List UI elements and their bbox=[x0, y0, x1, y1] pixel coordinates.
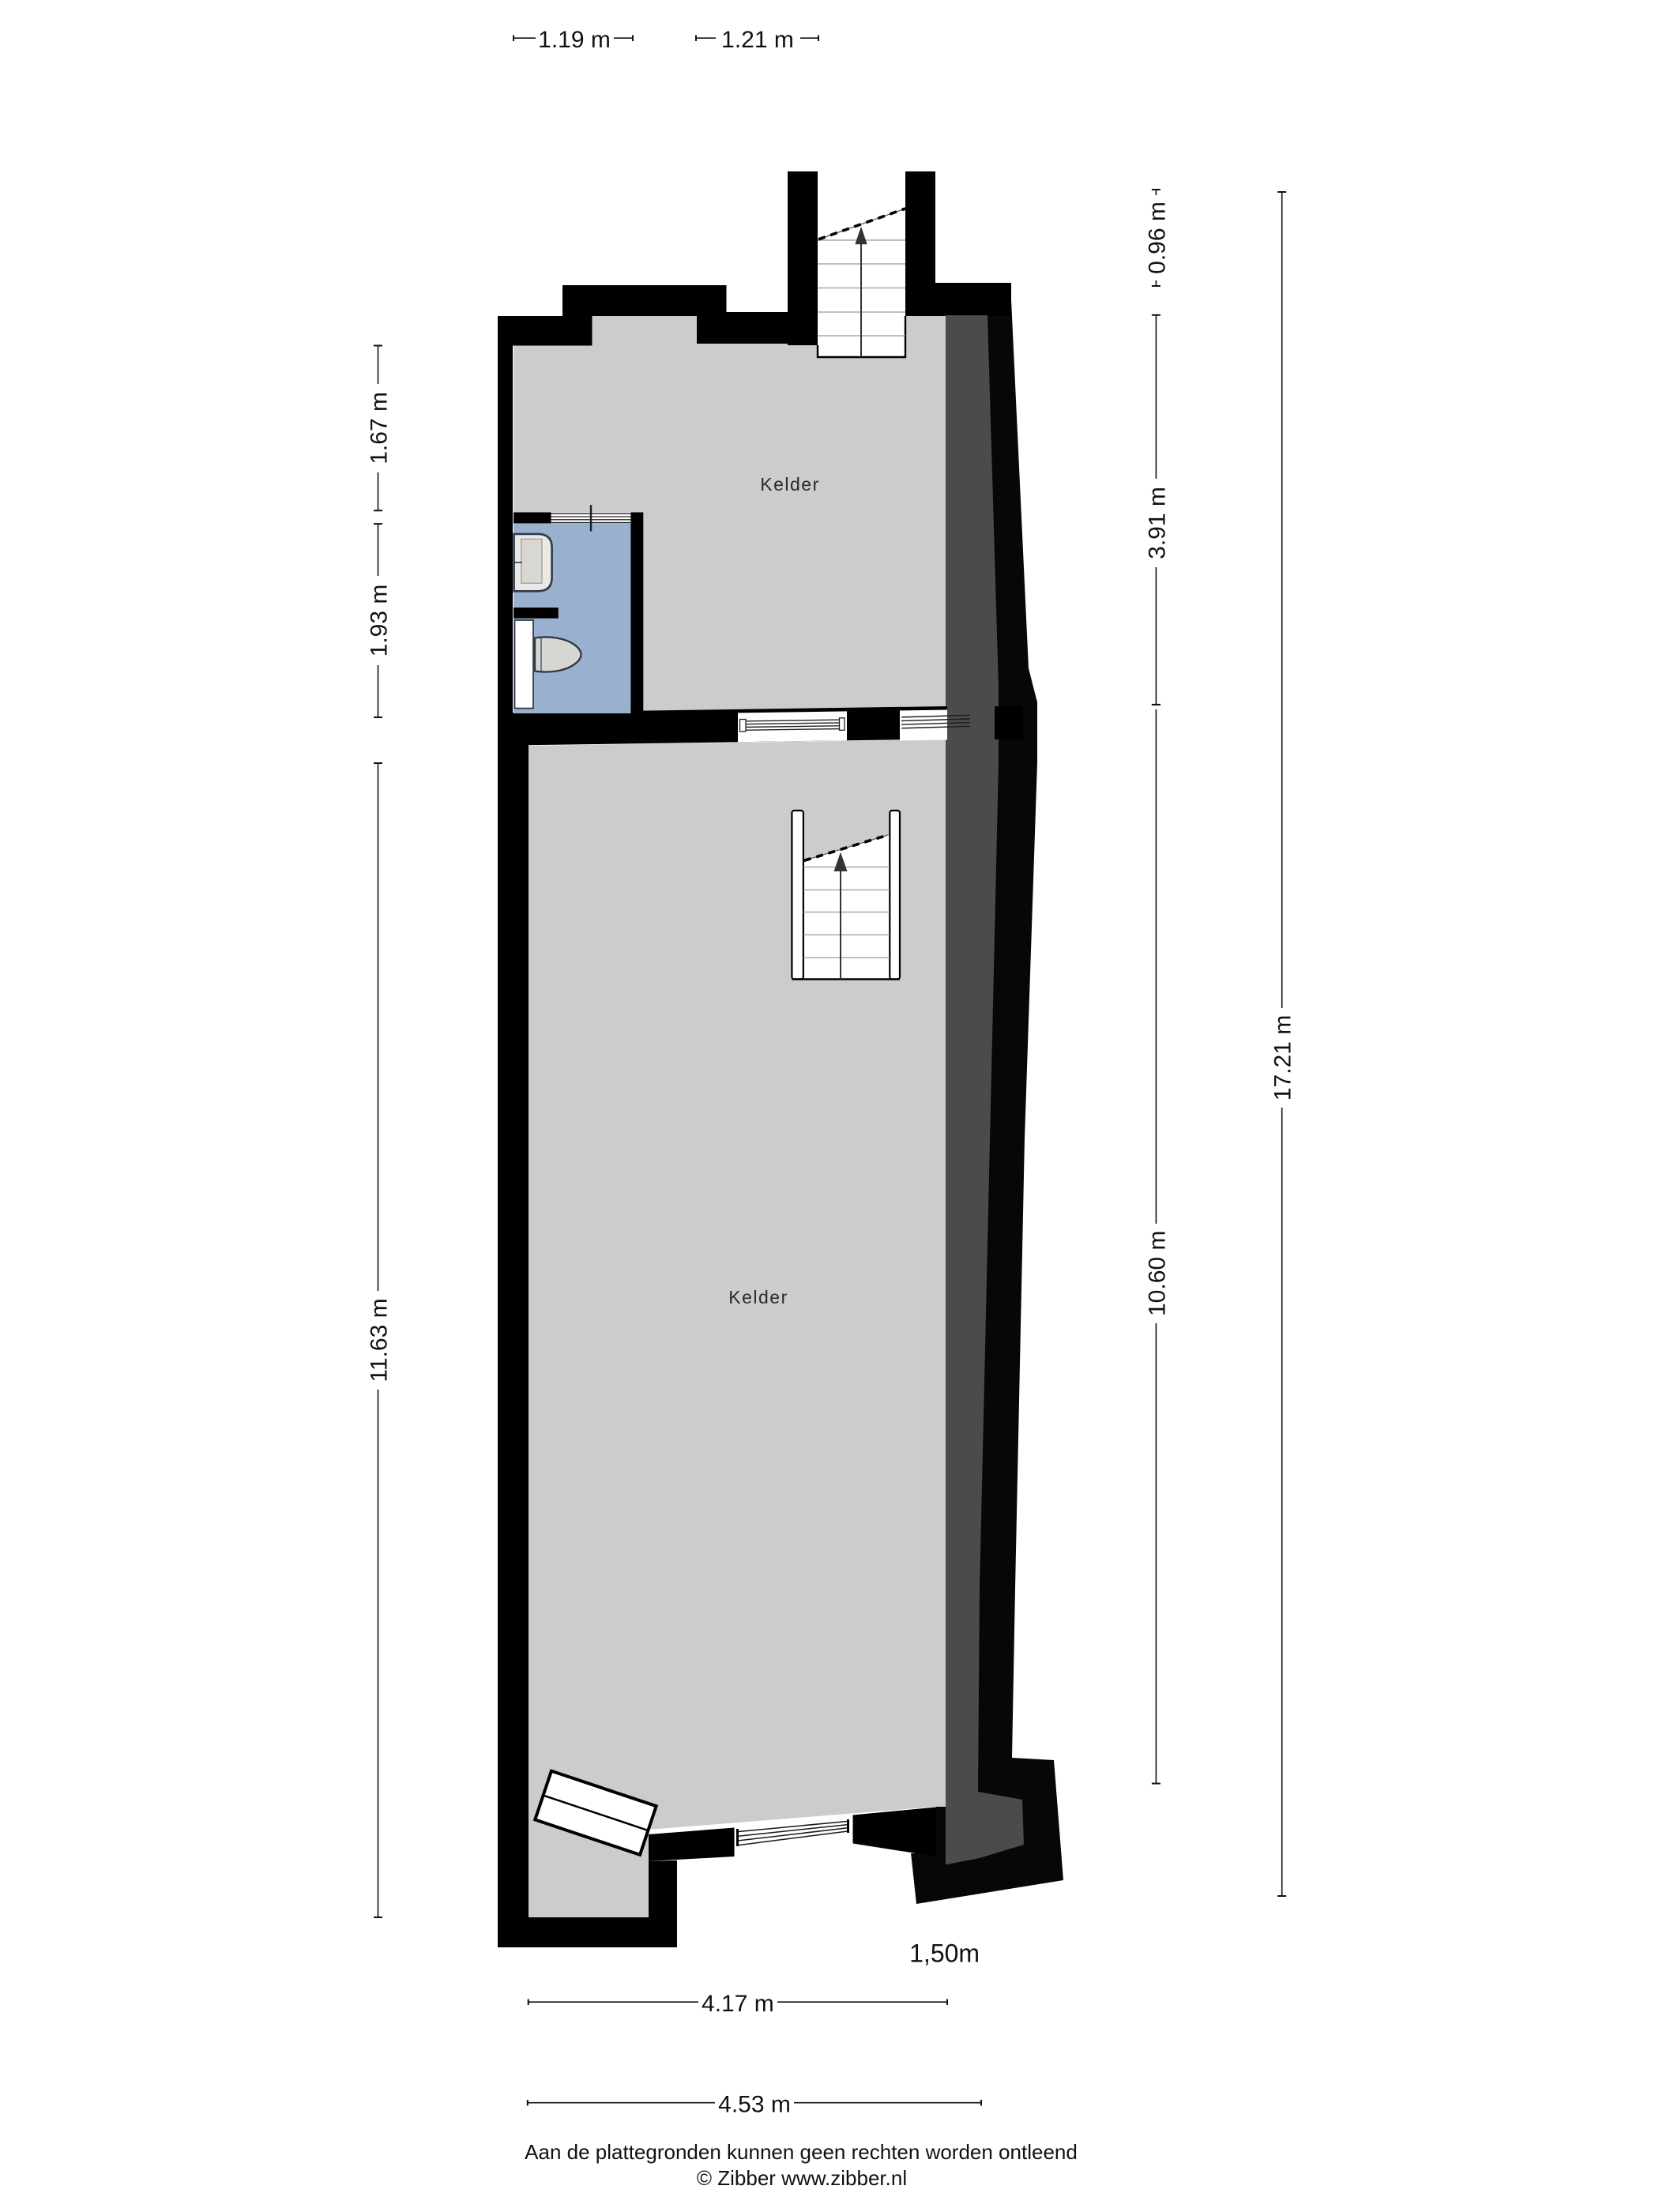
svg-text:© Zibber www.zibber.nl: © Zibber www.zibber.nl bbox=[697, 2166, 907, 2190]
svg-text:4.53 m: 4.53 m bbox=[718, 2092, 791, 2118]
svg-text:Kelder: Kelder bbox=[760, 474, 819, 495]
svg-text:1,50m: 1,50m bbox=[909, 1939, 980, 1968]
svg-text:11.63 m: 11.63 m bbox=[367, 1298, 393, 1382]
svg-text:Aan de plattegronden kunnen ge: Aan de plattegronden kunnen geen rechten… bbox=[525, 2140, 1078, 2164]
svg-text:1.19 m: 1.19 m bbox=[538, 27, 611, 53]
svg-text:0.96 m: 0.96 m bbox=[1144, 201, 1170, 274]
svg-text:1.67 m: 1.67 m bbox=[367, 392, 393, 465]
svg-text:17.21 m: 17.21 m bbox=[1270, 1015, 1296, 1100]
svg-text:4.17 m: 4.17 m bbox=[702, 1991, 774, 2017]
svg-text:1.21 m: 1.21 m bbox=[721, 27, 794, 53]
svg-text:Kelder: Kelder bbox=[728, 1287, 788, 1307]
svg-text:10.60 m: 10.60 m bbox=[1144, 1231, 1170, 1316]
svg-text:3.91 m: 3.91 m bbox=[1144, 487, 1170, 559]
svg-text:1.93 m: 1.93 m bbox=[367, 585, 393, 657]
